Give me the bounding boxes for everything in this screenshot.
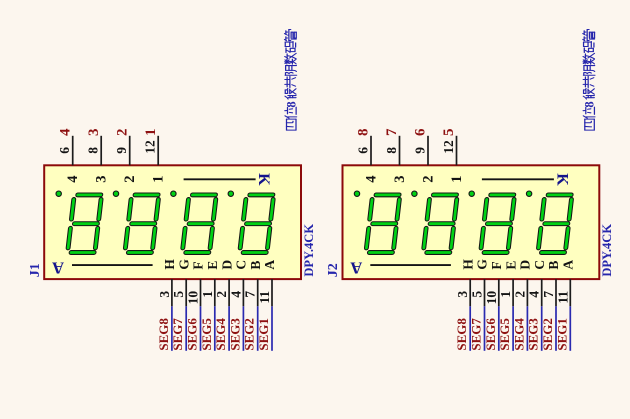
- svg-text:2: 2: [214, 291, 229, 298]
- svg-text:3: 3: [392, 176, 408, 183]
- svg-text:SEG1: SEG1: [554, 318, 569, 351]
- svg-text:SEG6: SEG6: [185, 318, 200, 351]
- svg-text:DPY.4CK: DPY.4CK: [600, 224, 614, 277]
- svg-text:K: K: [554, 173, 571, 186]
- svg-text:D: D: [219, 260, 234, 270]
- svg-text:10: 10: [484, 291, 499, 305]
- svg-text:3: 3: [157, 291, 172, 298]
- svg-text:C: C: [532, 260, 547, 270]
- svg-text:2: 2: [512, 291, 527, 298]
- svg-text:1: 1: [200, 291, 215, 298]
- svg-text:8: 8: [86, 147, 101, 154]
- svg-text:A: A: [262, 260, 277, 270]
- svg-text:G: G: [475, 259, 490, 270]
- svg-text:SEG3: SEG3: [227, 318, 242, 351]
- svg-text:8: 8: [284, 101, 298, 107]
- svg-text:SEG4: SEG4: [511, 318, 526, 351]
- svg-text:K: K: [255, 173, 272, 186]
- svg-text:10: 10: [186, 291, 201, 305]
- svg-text:SEG8: SEG8: [156, 318, 171, 351]
- svg-text:SEG2: SEG2: [540, 318, 555, 351]
- svg-text:E: E: [503, 261, 518, 270]
- svg-text:A: A: [52, 258, 64, 277]
- svg-text:7: 7: [541, 291, 556, 298]
- svg-text:2: 2: [122, 176, 138, 183]
- svg-text:C: C: [234, 260, 249, 270]
- svg-text:A: A: [561, 260, 576, 270]
- svg-text:5: 5: [441, 129, 457, 137]
- svg-text:12: 12: [441, 140, 456, 154]
- svg-text:SEG5: SEG5: [199, 318, 214, 351]
- svg-text:SEG1: SEG1: [256, 318, 271, 351]
- svg-text:3: 3: [455, 291, 470, 298]
- svg-text:8: 8: [583, 101, 597, 107]
- svg-text:SEG6: SEG6: [483, 318, 498, 351]
- svg-text:11: 11: [257, 291, 272, 304]
- svg-text:3: 3: [94, 176, 110, 183]
- svg-text:1: 1: [449, 176, 465, 183]
- svg-text:SEG2: SEG2: [242, 318, 257, 351]
- svg-text:4: 4: [363, 176, 379, 183]
- svg-text:A: A: [350, 258, 362, 277]
- svg-text:1: 1: [498, 291, 513, 298]
- svg-text:4: 4: [228, 291, 243, 298]
- svg-text:9: 9: [114, 147, 129, 154]
- svg-text:D: D: [518, 260, 533, 270]
- svg-text:4: 4: [57, 128, 73, 136]
- svg-text:6: 6: [57, 147, 72, 154]
- svg-text:3: 3: [86, 129, 102, 137]
- svg-text:4: 4: [527, 291, 542, 298]
- svg-text:J2: J2: [326, 263, 341, 277]
- svg-text:H: H: [460, 259, 475, 270]
- svg-text:7: 7: [243, 291, 258, 298]
- svg-text:SEG7: SEG7: [170, 318, 185, 351]
- svg-text:SEG7: SEG7: [469, 318, 484, 351]
- svg-text:2: 2: [114, 129, 130, 137]
- svg-text:B: B: [248, 261, 263, 270]
- svg-text:8: 8: [384, 147, 399, 154]
- svg-text:B: B: [546, 261, 561, 270]
- svg-text:11: 11: [555, 291, 570, 304]
- svg-text:6: 6: [355, 147, 370, 154]
- svg-text:4: 4: [65, 176, 81, 183]
- svg-text:6: 6: [413, 128, 429, 136]
- svg-text:F: F: [191, 261, 206, 269]
- svg-text:H: H: [162, 259, 177, 270]
- svg-text:1: 1: [151, 176, 167, 183]
- svg-text:9: 9: [412, 147, 427, 154]
- svg-text:SEG8: SEG8: [454, 318, 469, 351]
- svg-text:2: 2: [420, 176, 436, 183]
- svg-text:1: 1: [143, 129, 159, 137]
- svg-text:G: G: [176, 259, 191, 270]
- svg-text:DPY.4CK: DPY.4CK: [302, 224, 316, 277]
- svg-text:5: 5: [470, 291, 485, 298]
- svg-text:J1: J1: [28, 263, 43, 277]
- svg-text:F: F: [489, 261, 504, 269]
- svg-text:SEG3: SEG3: [526, 318, 541, 351]
- svg-text:7: 7: [384, 128, 400, 136]
- svg-text:SEG5: SEG5: [497, 318, 512, 351]
- svg-text:12: 12: [143, 140, 158, 154]
- svg-text:8: 8: [356, 129, 372, 137]
- svg-text:5: 5: [171, 291, 186, 298]
- svg-text:SEG4: SEG4: [213, 318, 228, 351]
- svg-text:E: E: [205, 261, 220, 270]
